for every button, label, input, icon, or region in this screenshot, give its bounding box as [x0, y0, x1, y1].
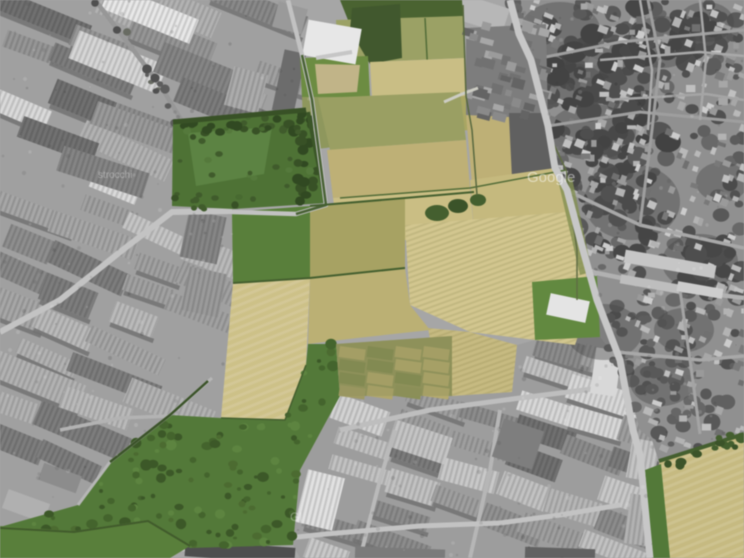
svg-text:Google: Google	[527, 169, 575, 186]
svg-text:Gl: Gl	[290, 510, 302, 524]
svg-text:strocchi: strocchi	[98, 170, 132, 181]
